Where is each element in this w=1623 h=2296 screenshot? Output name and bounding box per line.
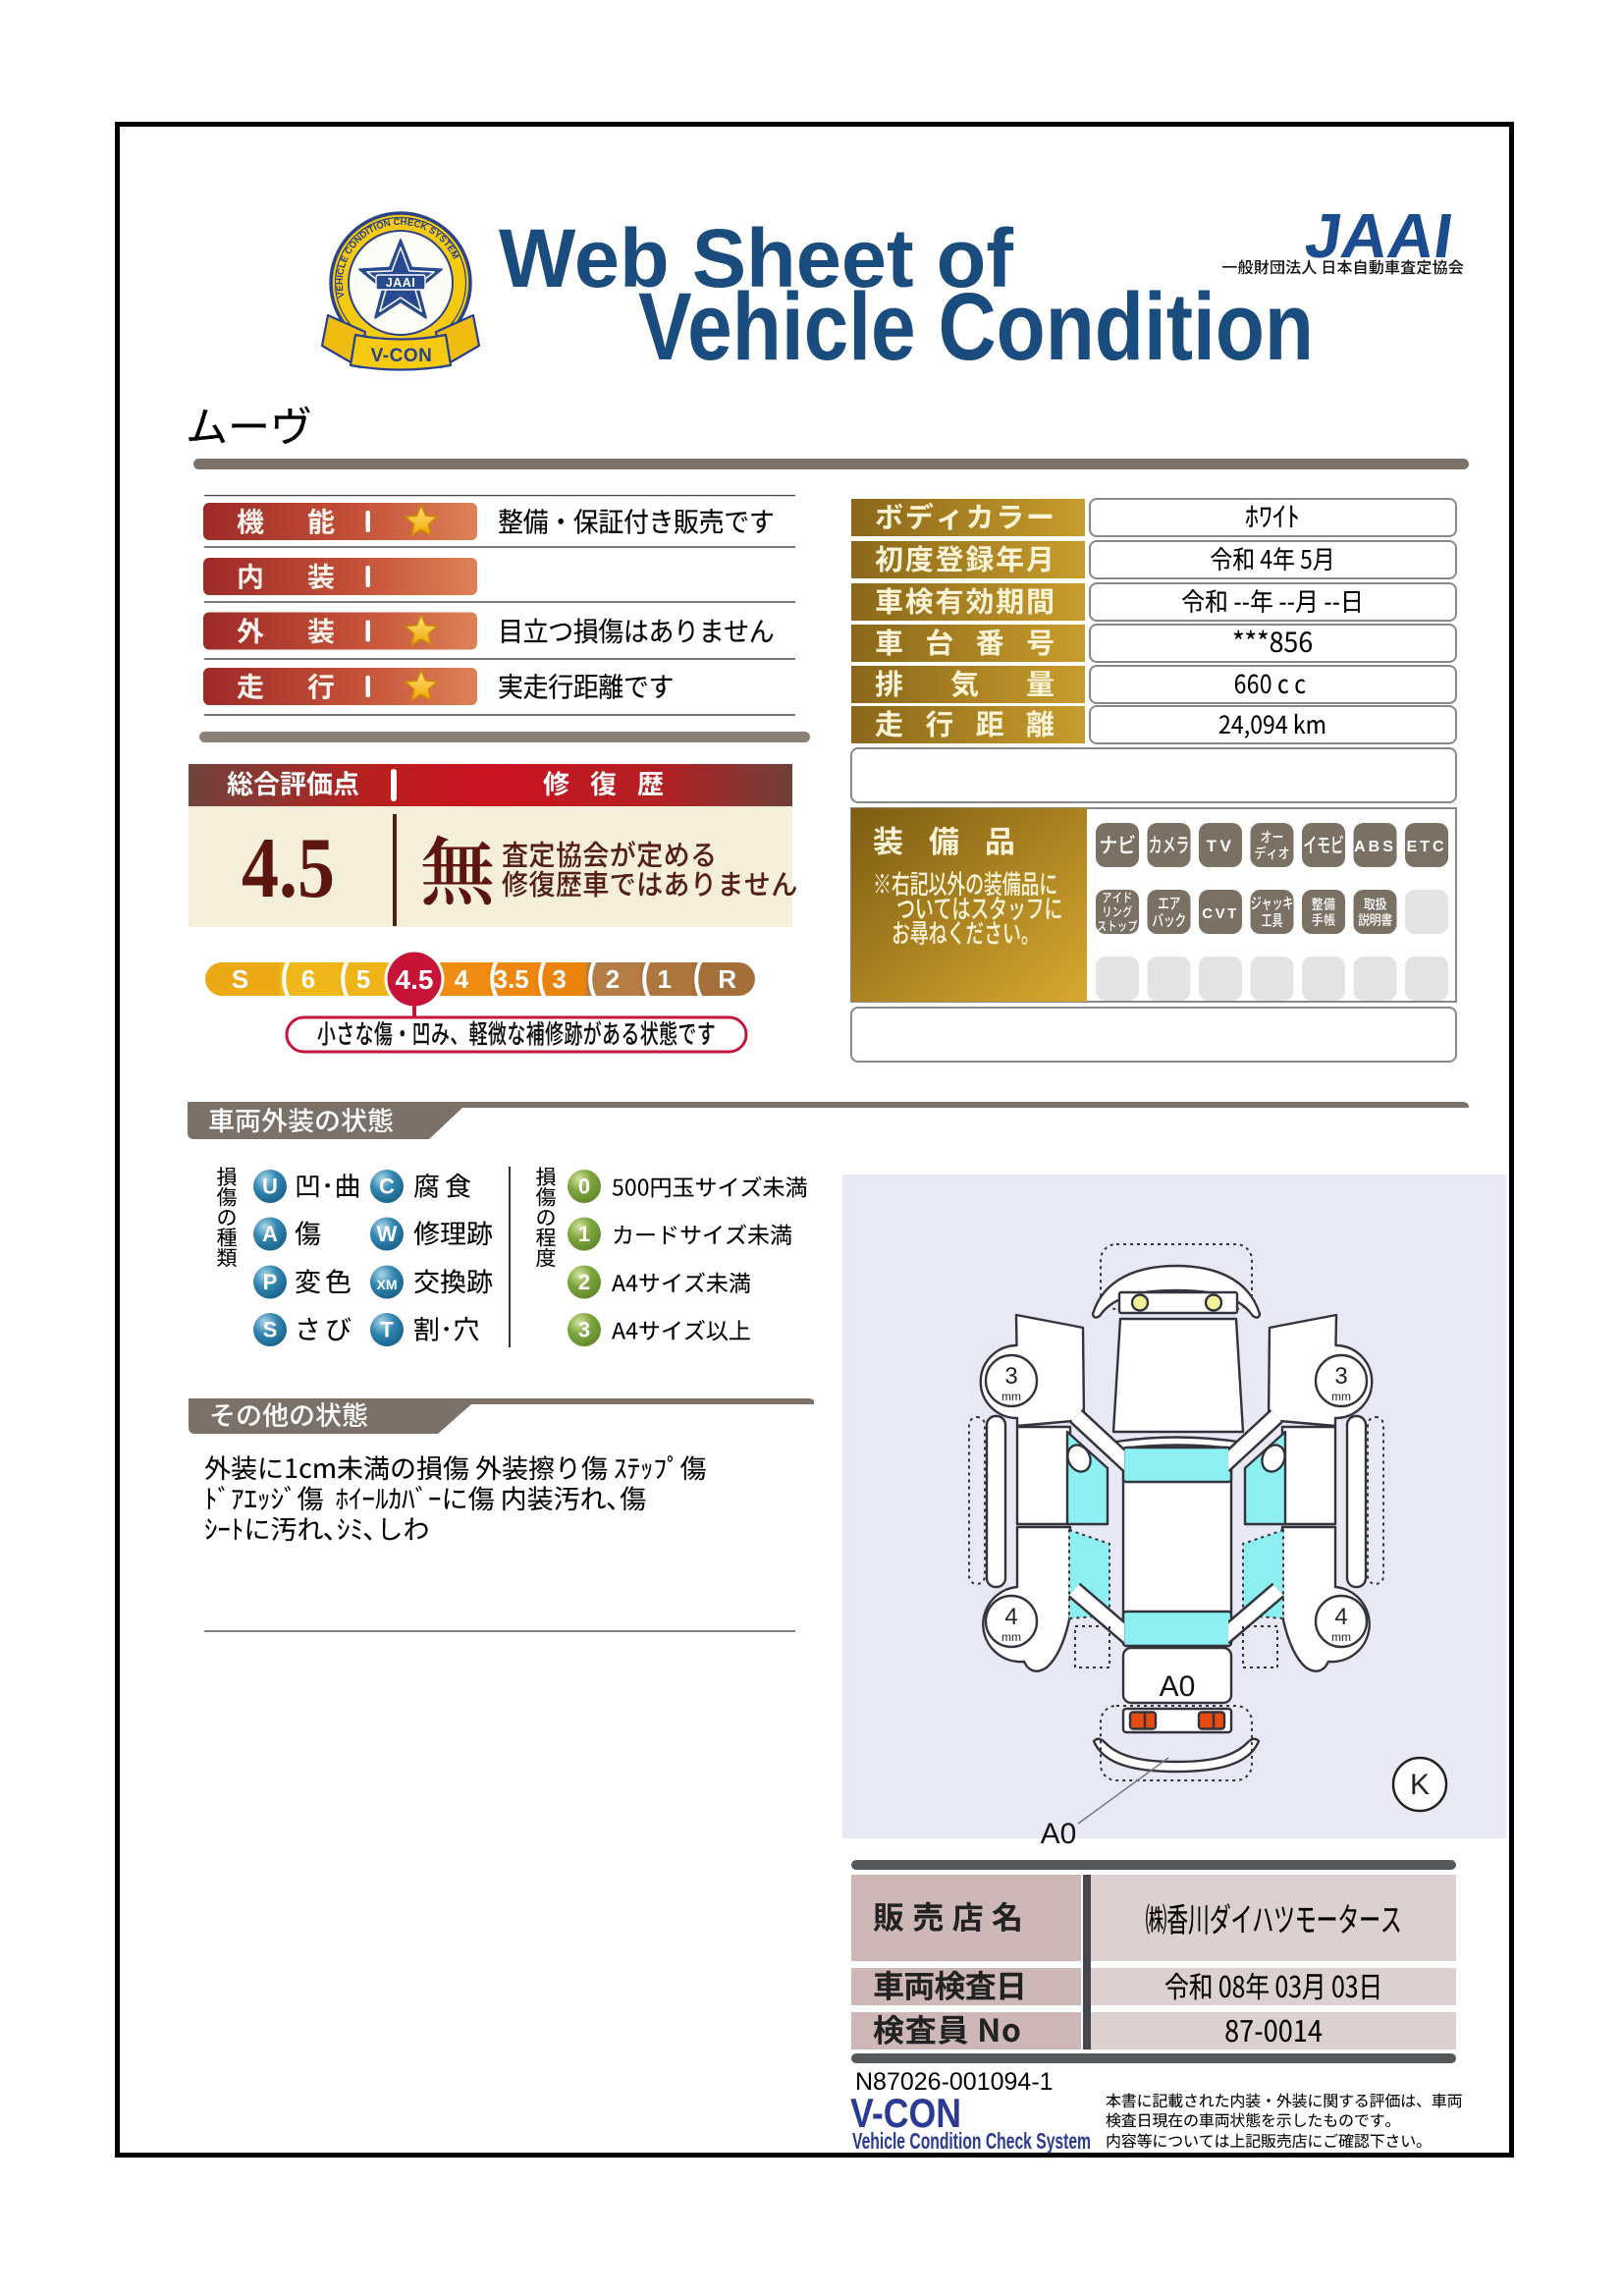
svg-text:ABS: ABS	[1354, 839, 1396, 855]
svg-text:4: 4	[455, 964, 469, 994]
svg-text:R: R	[718, 964, 736, 994]
svg-text:U: U	[262, 1175, 278, 1199]
svg-text:4: 4	[1004, 1604, 1017, 1630]
svg-text:T: T	[380, 1318, 394, 1342]
svg-text:2: 2	[606, 964, 620, 994]
svg-text:mm: mm	[1331, 1390, 1351, 1403]
svg-text:2: 2	[578, 1270, 590, 1294]
svg-text:4: 4	[1334, 1604, 1347, 1630]
svg-text:S: S	[263, 1318, 278, 1342]
svg-text:1: 1	[657, 964, 671, 994]
svg-text:3: 3	[1334, 1363, 1347, 1390]
svg-text:5: 5	[356, 964, 370, 994]
svg-text:4.5: 4.5	[396, 964, 434, 995]
svg-text:Vehicle Condition: Vehicle Condition	[638, 273, 1314, 380]
svg-text:K: K	[1410, 1769, 1430, 1801]
svg-text:3: 3	[578, 1318, 590, 1342]
svg-text:0: 0	[578, 1175, 590, 1199]
svg-text:S: S	[232, 964, 248, 994]
svg-text:TV: TV	[1207, 837, 1235, 855]
svg-text:mm: mm	[1001, 1390, 1021, 1403]
svg-text:V-CON: V-CON	[371, 346, 433, 366]
svg-text:P: P	[263, 1270, 278, 1294]
svg-text:mm: mm	[1001, 1630, 1021, 1644]
svg-text:4.5: 4.5	[242, 821, 335, 916]
svg-text:1: 1	[578, 1222, 590, 1246]
svg-text:6: 6	[301, 964, 315, 994]
svg-text:A: A	[262, 1222, 278, 1246]
svg-text:mm: mm	[1331, 1630, 1351, 1644]
svg-text:JAAI: JAAI	[386, 276, 415, 290]
svg-text:3: 3	[1004, 1363, 1017, 1390]
svg-text:A0: A0	[1160, 1670, 1196, 1703]
svg-text:C: C	[379, 1175, 395, 1199]
svg-text:Vehicle Condition Check System: Vehicle Condition Check System	[852, 2128, 1091, 2154]
svg-text:ETC: ETC	[1407, 839, 1447, 855]
svg-text:3.5: 3.5	[494, 964, 529, 994]
svg-text:W: W	[377, 1222, 398, 1246]
svg-text:XM: XM	[377, 1277, 398, 1292]
svg-text:3: 3	[552, 964, 566, 994]
svg-text:A0: A0	[1041, 1818, 1077, 1850]
svg-text:CVT: CVT	[1202, 905, 1239, 922]
